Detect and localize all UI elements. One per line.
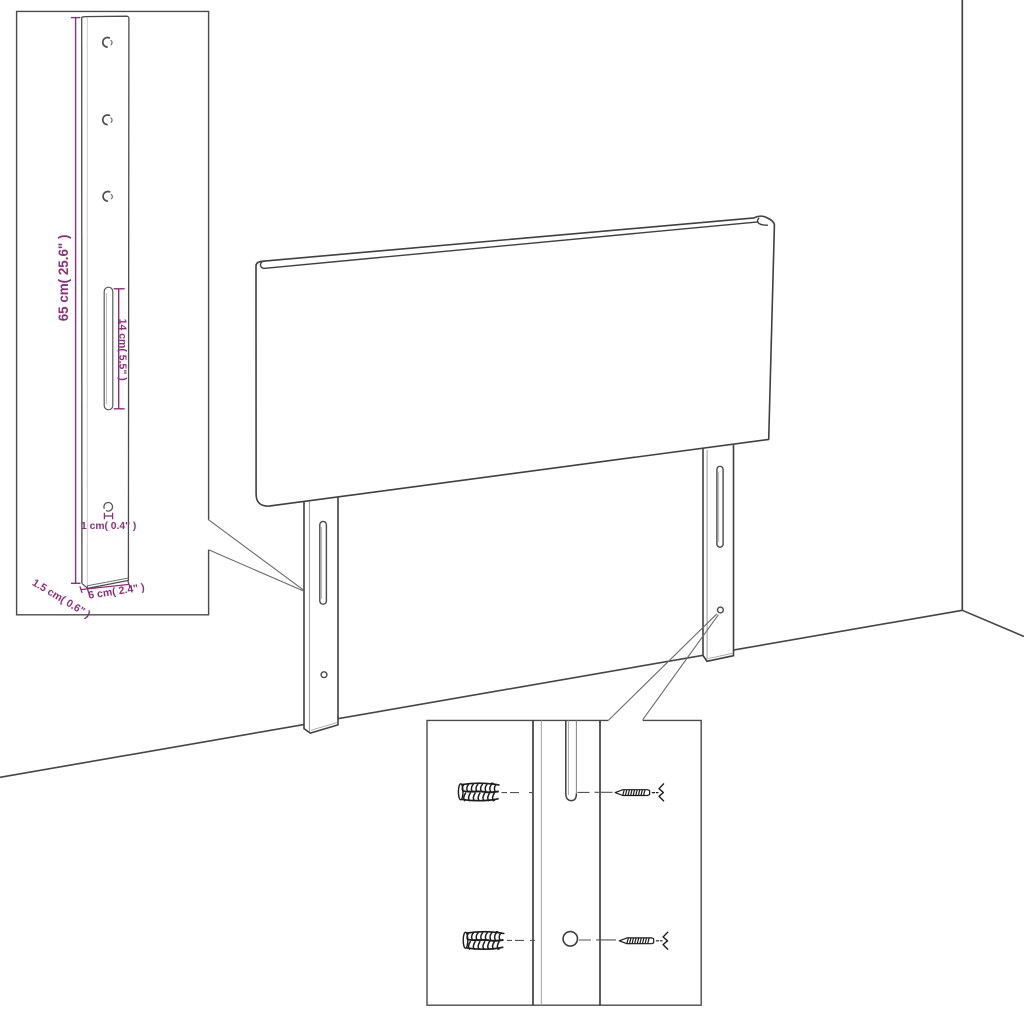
svg-text:1 cm( 0.4" ): 1 cm( 0.4" ) (81, 521, 136, 532)
svg-text:65 cm( 25.6" ): 65 cm( 25.6" ) (56, 235, 71, 322)
svg-text:14 cm( 5.5" ): 14 cm( 5.5" ) (116, 319, 128, 381)
